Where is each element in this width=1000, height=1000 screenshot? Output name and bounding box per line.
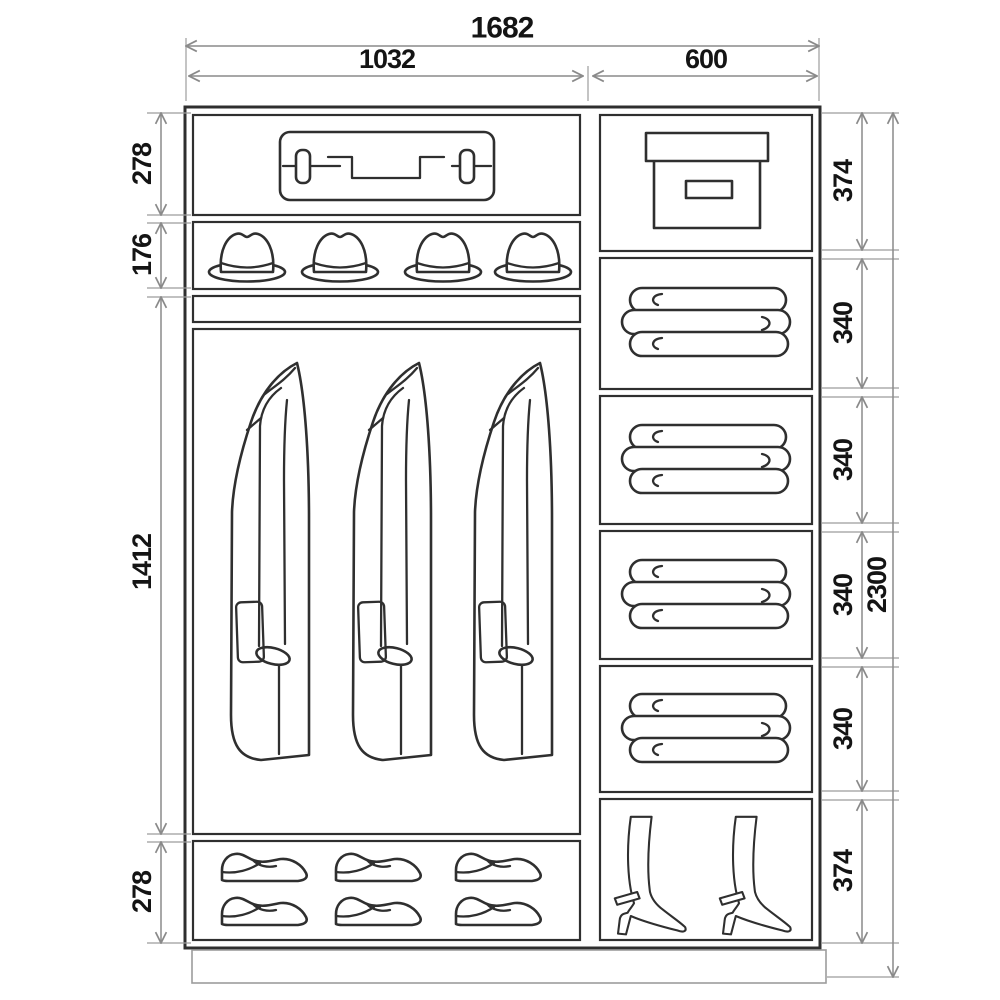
wardrobe-diagram-canvas: 1682 1032 600 278 176 1412 278 374 340 3… bbox=[0, 0, 1000, 1000]
dim-label-right-height-1: 374 bbox=[828, 159, 858, 202]
dim-label-left-section-width: 1032 bbox=[359, 44, 415, 74]
dim-label-left-height-4: 278 bbox=[127, 870, 157, 913]
dim-label-right-height-3: 340 bbox=[828, 439, 858, 481]
dim-label-overall-height: 2300 bbox=[862, 557, 892, 613]
dim-label-right-height-6: 374 bbox=[828, 849, 858, 892]
wardrobe-dimension-drawing: 1682 1032 600 278 176 1412 278 374 340 3… bbox=[0, 0, 1000, 1000]
folded-linen-icon bbox=[622, 288, 790, 356]
dim-label-right-height-4: 340 bbox=[828, 574, 858, 616]
compartment-narrow-shelf bbox=[193, 296, 580, 322]
storage-box-icon bbox=[646, 133, 768, 228]
dim-label-left-height-3: 1412 bbox=[127, 534, 157, 590]
folded-linen-icon bbox=[622, 560, 790, 628]
dim-label-right-height-2: 340 bbox=[828, 302, 858, 344]
dim-label-left-height-1: 278 bbox=[127, 142, 157, 185]
dim-label-overall-width: 1682 bbox=[471, 12, 534, 45]
suitcase-icon bbox=[280, 132, 494, 200]
dim-label-right-section-width: 600 bbox=[685, 44, 727, 74]
folded-linen-icon bbox=[622, 425, 790, 493]
folded-linen-icon bbox=[622, 694, 790, 762]
dim-label-left-height-2: 176 bbox=[127, 233, 157, 276]
wardrobe-plinth bbox=[192, 950, 826, 983]
dim-label-right-height-5: 340 bbox=[828, 708, 858, 750]
